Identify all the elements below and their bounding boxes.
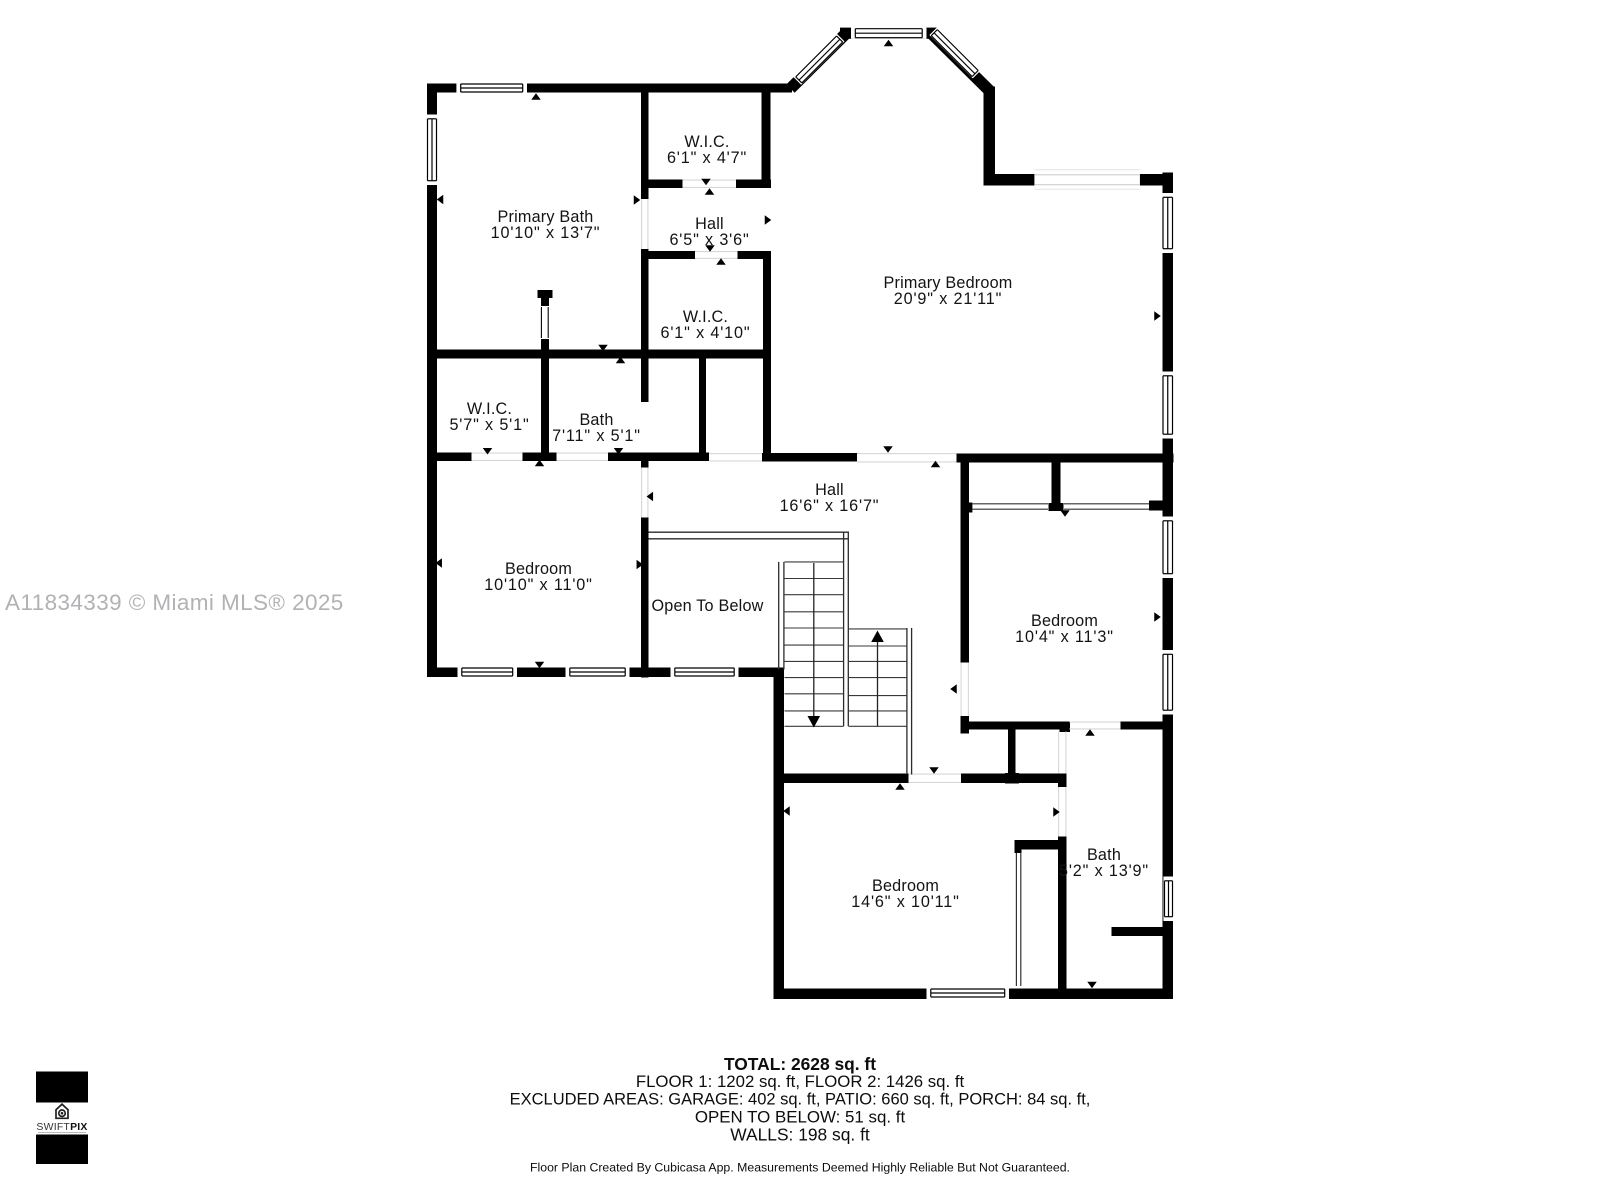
svg-text:10'10" x 13'7": 10'10" x 13'7": [491, 224, 601, 242]
svg-text:A11834339 © Miami MLS® 2025: A11834339 © Miami MLS® 2025: [5, 590, 344, 615]
svg-text:6'1" x 4'7": 6'1" x 4'7": [667, 149, 747, 167]
svg-text:6'5" x 3'6": 6'5" x 3'6": [669, 231, 749, 249]
svg-text:16'6" x 16'7": 16'6" x 16'7": [780, 497, 880, 515]
svg-text:WALLS: 198 sq. ft: WALLS: 198 sq. ft: [730, 1125, 870, 1145]
svg-text:10'10" x 11'0": 10'10" x 11'0": [484, 576, 592, 594]
svg-text:5'7" x 5'1": 5'7" x 5'1": [449, 416, 529, 434]
svg-text:FLOOR 1: 1202 sq. ft, FLOOR 2:: FLOOR 1: 1202 sq. ft, FLOOR 2: 1426 sq. …: [636, 1072, 965, 1091]
svg-text:20'9" x 21'11": 20'9" x 21'11": [894, 290, 1002, 308]
svg-text:10'4" x 11'3": 10'4" x 11'3": [1015, 628, 1114, 646]
svg-text:Open To Below: Open To Below: [651, 597, 763, 615]
svg-text:Floor Plan Created By Cubicasa: Floor Plan Created By Cubicasa App. Meas…: [530, 1160, 1070, 1174]
svg-text:5'2" x 13'9": 5'2" x 13'9": [1059, 862, 1149, 880]
svg-text:14'6" x 10'11": 14'6" x 10'11": [851, 893, 959, 911]
svg-text:SWIFTPIX: SWIFTPIX: [36, 1121, 87, 1133]
svg-text:6'1" x 4'10": 6'1" x 4'10": [661, 324, 751, 342]
svg-text:EXCLUDED AREAS: GARAGE: 402 sq: EXCLUDED AREAS: GARAGE: 402 sq. ft, PATI…: [510, 1091, 1091, 1109]
svg-text:7'11" x 5'1": 7'11" x 5'1": [552, 427, 641, 445]
